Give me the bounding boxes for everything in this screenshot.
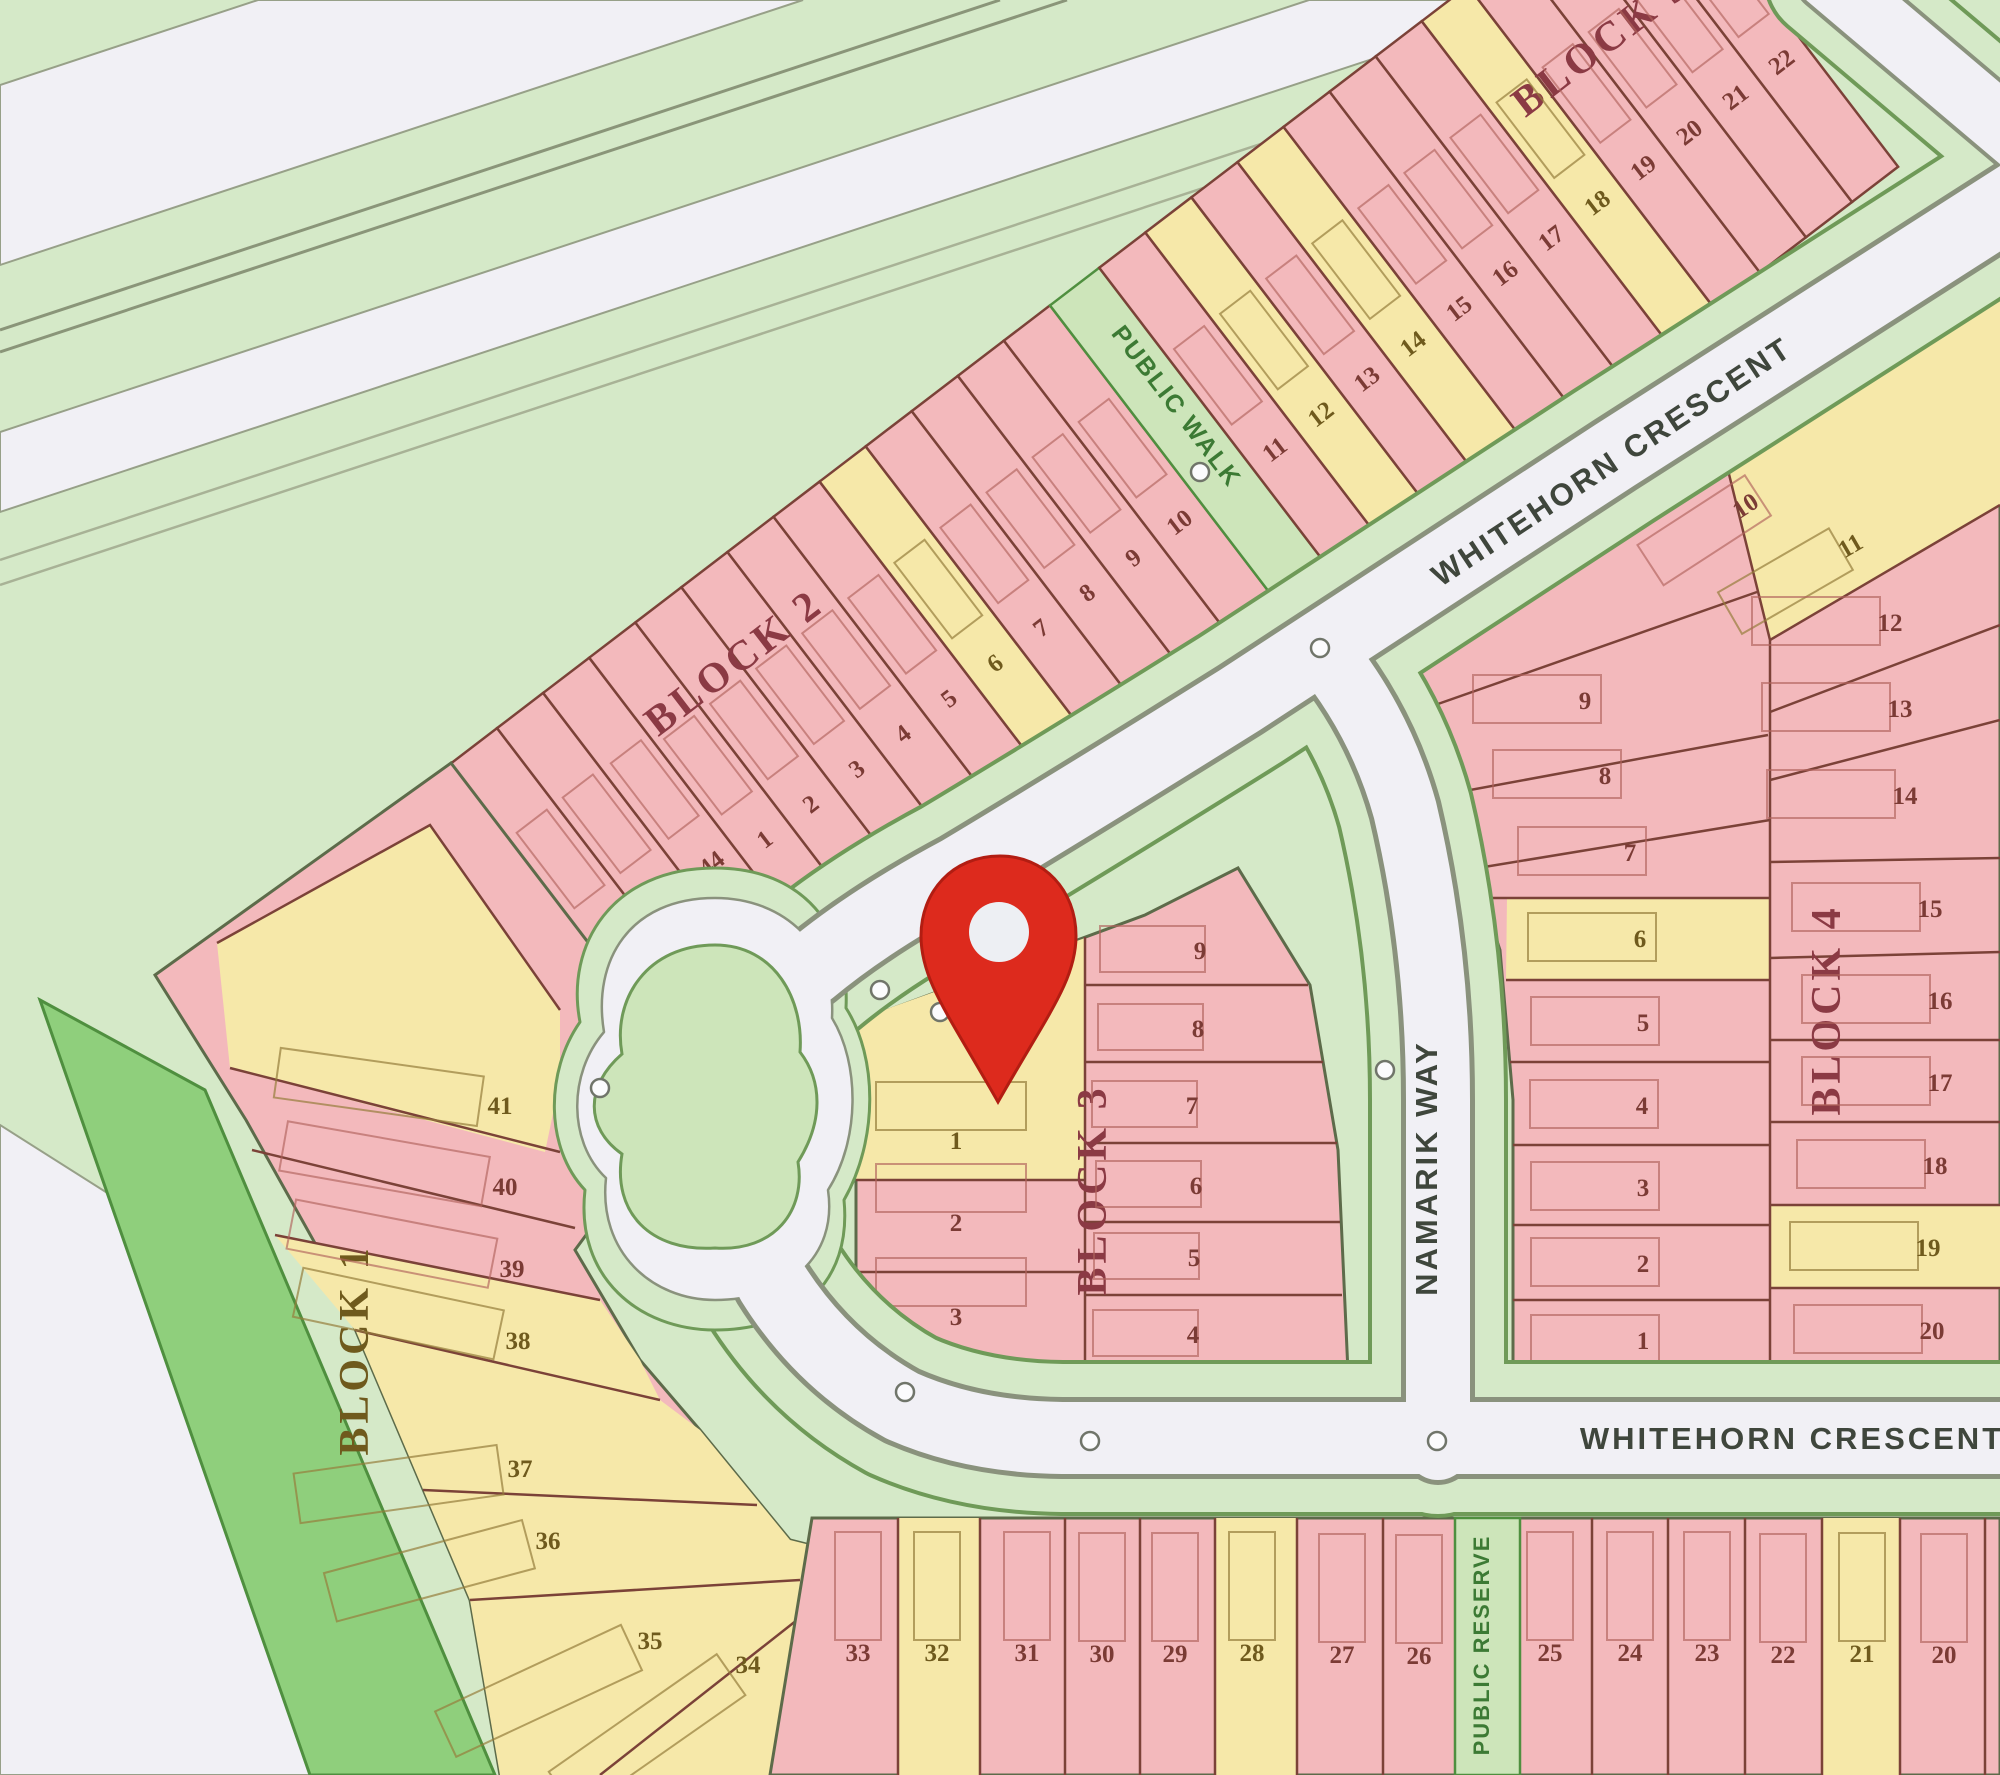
lot-number[interactable]: 35 xyxy=(638,1628,663,1655)
lot-number[interactable]: 3 xyxy=(950,1304,963,1331)
lot-number[interactable]: 29 xyxy=(1163,1641,1188,1668)
lot-number[interactable]: 5 xyxy=(1637,1010,1650,1037)
lot-number[interactable]: 20 xyxy=(1932,1642,1957,1669)
lot-number[interactable]: 40 xyxy=(493,1174,518,1201)
lot-number[interactable]: 3 xyxy=(1637,1175,1650,1202)
survey-node xyxy=(591,1079,609,1097)
block-4-label: BLOCK 4 xyxy=(1804,904,1850,1115)
lot-number[interactable]: 12 xyxy=(1878,610,1903,637)
lot-number[interactable]: 39 xyxy=(500,1256,525,1283)
lot-number[interactable]: 23 xyxy=(1695,1640,1720,1667)
survey-node xyxy=(1081,1432,1099,1450)
lot-number[interactable]: 13 xyxy=(1888,696,1913,723)
lot-number[interactable]: 27 xyxy=(1330,1642,1355,1669)
lot-number[interactable]: 26 xyxy=(1407,1643,1432,1670)
lot-number[interactable]: 33 xyxy=(846,1640,871,1667)
lot-number[interactable]: 34 xyxy=(736,1652,762,1679)
lot-number[interactable]: 41 xyxy=(488,1093,513,1120)
lot-number[interactable]: 20 xyxy=(1920,1318,1945,1345)
lot-number[interactable]: 5 xyxy=(1188,1245,1201,1272)
lot-number[interactable]: 19 xyxy=(1916,1235,1941,1262)
lot-number[interactable]: 8 xyxy=(1192,1016,1205,1043)
lot-number[interactable]: 7 xyxy=(1624,840,1637,867)
lot-number[interactable]: 9 xyxy=(1579,688,1592,715)
street-label-namarik-way: NAMARIK WAY xyxy=(1409,1040,1444,1296)
lot-number[interactable]: 4 xyxy=(1187,1322,1200,1349)
plat-map-stage: BLOCK 2 BLOCK 5 PUBLIC WALK 424344123456… xyxy=(0,0,2000,1775)
bottom-lot-strip: PUBLIC RESERVE 3332313029282726252423222… xyxy=(770,1518,2000,1775)
lot-number[interactable]: 16 xyxy=(1928,988,1953,1015)
lot-number[interactable]: 25 xyxy=(1538,1640,1563,1667)
lot-number[interactable]: 1 xyxy=(1637,1328,1650,1355)
lot-number[interactable]: 17 xyxy=(1928,1070,1953,1097)
lot-number[interactable]: 8 xyxy=(1599,763,1612,790)
lot-parcel[interactable] xyxy=(1770,1205,2000,1288)
lot-number[interactable]: 28 xyxy=(1240,1640,1265,1667)
survey-node xyxy=(1311,639,1329,657)
lot-number[interactable]: 15 xyxy=(1918,896,1943,923)
survey-node xyxy=(896,1383,914,1401)
street-label-whitehorn-crescent-horizontal: WHITEHORN CRESCENT xyxy=(1580,1421,2000,1456)
survey-node xyxy=(1376,1061,1394,1079)
lot-number[interactable]: 30 xyxy=(1090,1641,1115,1668)
lot-number[interactable]: 6 xyxy=(1190,1173,1203,1200)
survey-node xyxy=(1428,1432,1446,1450)
lot-number[interactable]: 9 xyxy=(1194,938,1207,965)
lot-number[interactable]: 1 xyxy=(950,1128,963,1155)
lot-number[interactable]: 2 xyxy=(1637,1251,1650,1278)
lot-number[interactable]: 21 xyxy=(1850,1641,1875,1668)
lot-number[interactable]: 24 xyxy=(1618,1640,1644,1667)
pin-hole xyxy=(969,902,1029,962)
lot-number[interactable]: 38 xyxy=(506,1328,531,1355)
lot-number[interactable]: 6 xyxy=(1634,926,1647,953)
lot-number[interactable]: 31 xyxy=(1015,1640,1040,1667)
survey-node xyxy=(1191,463,1209,481)
lot-number[interactable]: 14 xyxy=(1893,783,1919,810)
lot-number[interactable]: 32 xyxy=(925,1640,950,1667)
lot-number[interactable]: 18 xyxy=(1923,1153,1948,1180)
plat-map: BLOCK 2 BLOCK 5 PUBLIC WALK 424344123456… xyxy=(0,0,2000,1775)
lot-number[interactable]: 4 xyxy=(1636,1093,1649,1120)
lot-number[interactable]: 36 xyxy=(536,1528,561,1555)
lot-number[interactable]: 7 xyxy=(1186,1093,1199,1120)
lot-number[interactable]: 37 xyxy=(508,1456,533,1483)
lot-number[interactable]: 22 xyxy=(1771,1642,1796,1669)
lot-number[interactable]: 2 xyxy=(950,1210,963,1237)
survey-node xyxy=(871,981,889,999)
public-reserve-label: PUBLIC RESERVE xyxy=(1469,1535,1494,1756)
